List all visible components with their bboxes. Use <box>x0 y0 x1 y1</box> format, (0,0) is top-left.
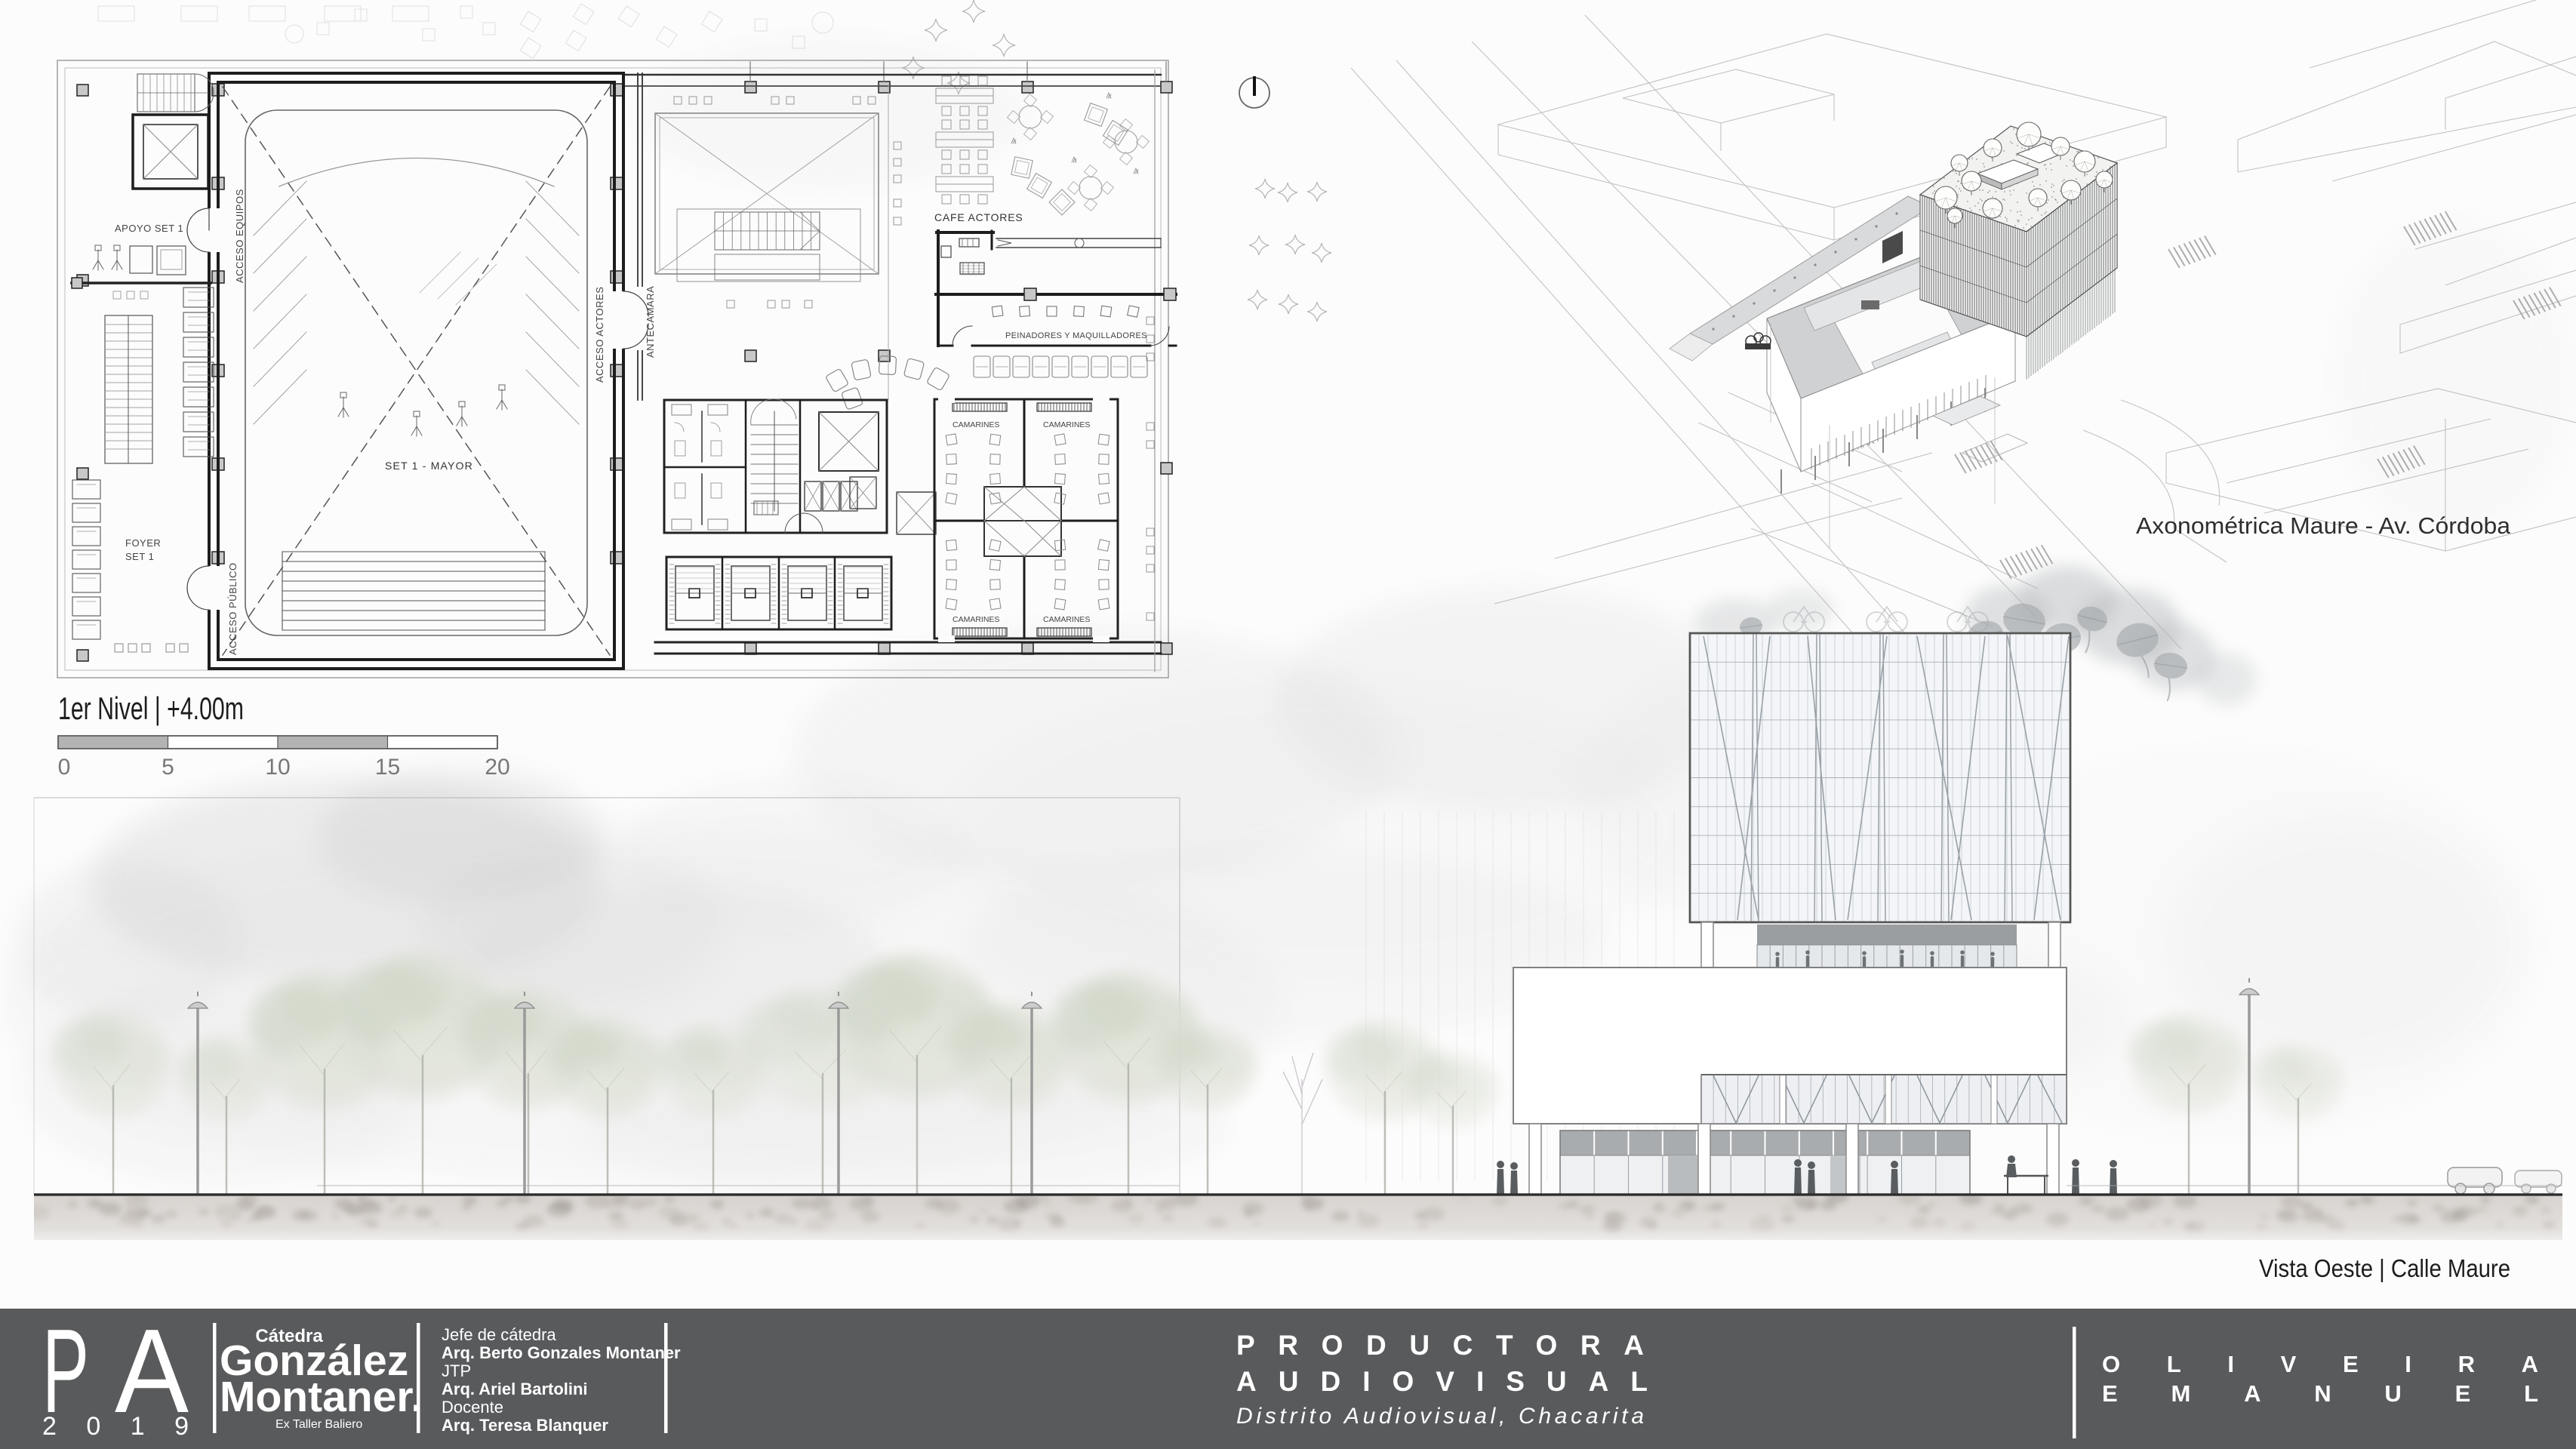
svg-text:Montaner.: Montaner. <box>220 1373 423 1421</box>
svg-text:Ex Taller Baliero: Ex Taller Baliero <box>275 1418 362 1431</box>
svg-text:CAFE ACTORES: CAFE ACTORES <box>934 211 1023 223</box>
svg-text:PEINADORES Y MAQUILLADORES: PEINADORES Y MAQUILLADORES <box>1005 331 1147 340</box>
svg-text:ACCESO ACTORES: ACCESO ACTORES <box>594 287 605 383</box>
svg-text:10: 10 <box>265 755 290 780</box>
svg-text:Arq. Teresa Blanquer: Arq. Teresa Blanquer <box>442 1416 608 1435</box>
svg-text:15: 15 <box>375 755 400 780</box>
svg-text:SET 1 - MAYOR: SET 1 - MAYOR <box>385 460 473 472</box>
svg-text:ANTECAMARA: ANTECAMARA <box>645 286 656 358</box>
svg-text:CAMARINES: CAMARINES <box>1043 420 1090 429</box>
svg-text:1er Nivel | +4.00m: 1er Nivel | +4.00m <box>58 691 244 726</box>
svg-text:Vista Oeste | Calle Maure: Vista Oeste | Calle Maure <box>2259 1254 2510 1282</box>
svg-text:ACCESO PÚBLICO: ACCESO PÚBLICO <box>227 562 239 655</box>
svg-text:SET 1: SET 1 <box>125 551 154 562</box>
svg-text:ACCESO EQUIPOS: ACCESO EQUIPOS <box>234 189 245 283</box>
svg-text:Axonométrica Maure - Av. Córd: Axonométrica Maure - Av. Córdoba <box>2136 512 2511 539</box>
svg-text:CAMARINES: CAMARINES <box>953 615 999 624</box>
svg-text:Jefe de cátedra: Jefe de cátedra <box>442 1325 556 1344</box>
svg-text:0: 0 <box>58 755 71 780</box>
svg-text:CAMARINES: CAMARINES <box>953 420 999 429</box>
svg-text:5: 5 <box>162 755 174 780</box>
svg-text:Docente: Docente <box>442 1398 503 1417</box>
svg-text:APOYO SET 1: APOYO SET 1 <box>115 223 183 234</box>
svg-text:20: 20 <box>485 755 509 780</box>
svg-text:Arq. Berto Gonzales Montaner: Arq. Berto Gonzales Montaner <box>442 1343 681 1362</box>
svg-text:FOYER: FOYER <box>125 537 161 549</box>
svg-text:JTP: JTP <box>442 1361 471 1380</box>
svg-text:CAMARINES: CAMARINES <box>1043 615 1090 624</box>
svg-text:Arq. Ariel Bartolini: Arq. Ariel Bartolini <box>442 1380 588 1398</box>
